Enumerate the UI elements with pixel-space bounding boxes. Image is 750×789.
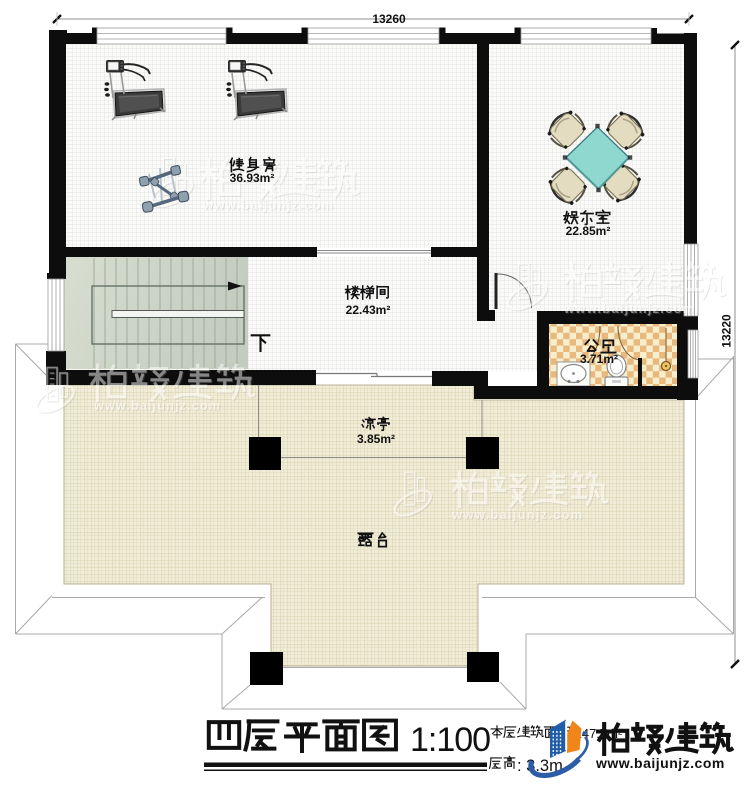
svg-text:www.baijunjz.com: www.baijunjz.com: [563, 301, 695, 316]
svg-text:36.93m²: 36.93m²: [230, 171, 275, 185]
svg-text:1:100: 1:100: [410, 721, 490, 759]
svg-text:22.43m²: 22.43m²: [346, 303, 391, 317]
svg-text:13260: 13260: [372, 12, 406, 26]
svg-text:22.85m²: 22.85m²: [566, 224, 611, 238]
svg-text:www.baijunjz.com: www.baijunjz.com: [93, 399, 221, 413]
svg-text:3.71m²: 3.71m²: [580, 352, 618, 366]
svg-text:www.baijunjz.com: www.baijunjz.com: [595, 755, 725, 771]
svg-text:www.baijunjz.com: www.baijunjz.com: [202, 198, 334, 213]
svg-text:www.baijunjz.com: www.baijunjz.com: [451, 507, 583, 522]
svg-text:3.85m²: 3.85m²: [357, 432, 395, 446]
svg-text:13220: 13220: [720, 314, 734, 348]
